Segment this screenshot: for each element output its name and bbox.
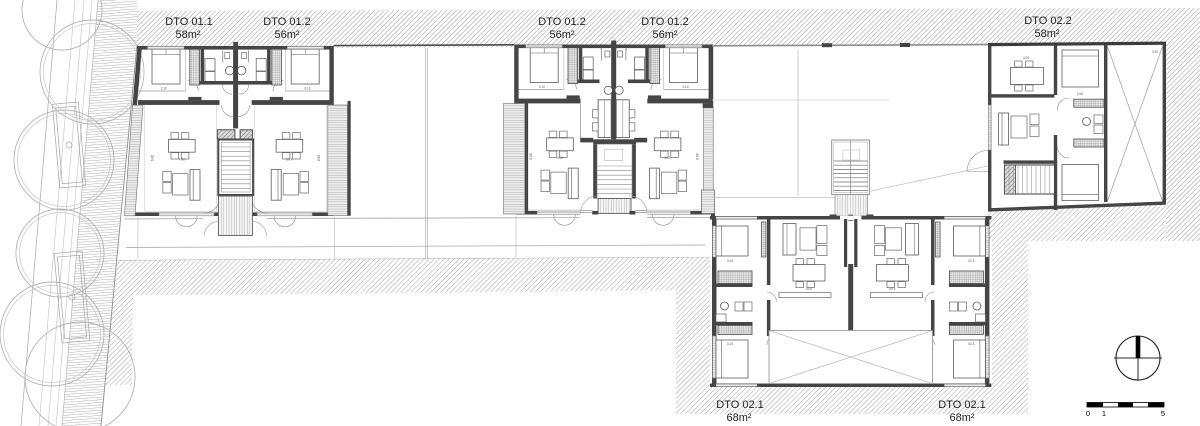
svg-text:5: 5 bbox=[1161, 409, 1165, 418]
svg-text:DTO 01.1: DTO 01.1 bbox=[165, 16, 213, 28]
svg-text:2.00: 2.00 bbox=[1077, 92, 1083, 96]
svg-text:1: 1 bbox=[1102, 409, 1106, 418]
svg-text:DTO 01.2: DTO 01.2 bbox=[538, 16, 586, 28]
svg-text:DTO 02.1: DTO 02.1 bbox=[716, 399, 764, 411]
svg-text:DTO 02.1: DTO 02.1 bbox=[938, 399, 986, 411]
svg-text:58m²: 58m² bbox=[1034, 28, 1059, 40]
svg-text:56m²: 56m² bbox=[549, 29, 574, 41]
svg-text:68m²: 68m² bbox=[949, 412, 974, 424]
svg-text:0: 0 bbox=[1086, 409, 1090, 418]
svg-text:56m²: 56m² bbox=[652, 29, 677, 41]
svg-text:68m²: 68m² bbox=[726, 412, 751, 424]
svg-text:56m²: 56m² bbox=[274, 29, 299, 41]
svg-text:4.00: 4.00 bbox=[806, 287, 812, 291]
svg-text:58m²: 58m² bbox=[175, 29, 200, 41]
svg-text:2.90: 2.90 bbox=[1152, 50, 1158, 54]
svg-text:DTO 01.2: DTO 01.2 bbox=[263, 16, 311, 28]
svg-text:3.10: 3.10 bbox=[727, 259, 733, 263]
svg-text:4.00: 4.00 bbox=[1023, 56, 1029, 60]
svg-text:3.10: 3.10 bbox=[727, 342, 733, 346]
svg-text:DTO 01.2: DTO 01.2 bbox=[641, 16, 689, 28]
svg-text:DTO 02.2: DTO 02.2 bbox=[1024, 15, 1072, 27]
